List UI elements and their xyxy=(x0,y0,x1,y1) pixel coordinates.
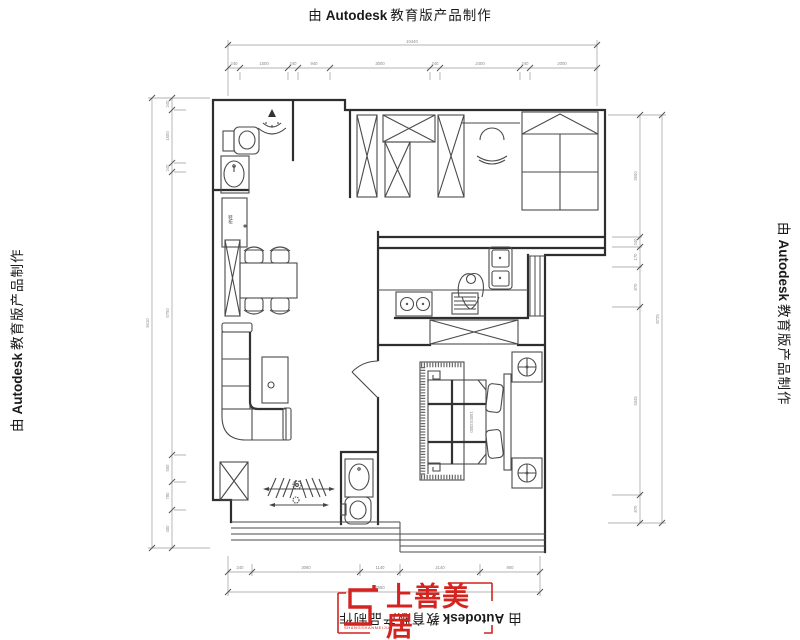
floorplan-canvas: 由Autodesk教育版产品制作 由Autodesk教育版产品制作 由Autod… xyxy=(0,0,800,640)
living-column xyxy=(220,462,248,500)
walls xyxy=(213,100,605,552)
entry-plant-decor xyxy=(263,478,335,507)
dim-label: 240 xyxy=(165,100,170,108)
dim-label: 170 xyxy=(633,253,638,261)
shower-head-icon xyxy=(258,109,286,134)
person-figure xyxy=(458,274,483,309)
window-kitchen-right xyxy=(528,256,545,316)
bathroom-toilet xyxy=(223,127,259,154)
dim-label: 240 xyxy=(290,61,298,66)
dim-label: 780 xyxy=(165,492,170,500)
dim-label: 1500 xyxy=(165,131,170,141)
dim-label: 8725 xyxy=(655,314,660,324)
dim-label: 240 xyxy=(231,61,239,66)
desk-chair xyxy=(462,123,520,164)
dim-label: 240 xyxy=(633,238,638,246)
dim-label: 870 xyxy=(633,283,638,291)
dim-label: 3060 xyxy=(301,565,311,570)
stove xyxy=(396,292,432,316)
dim-label: 9410 xyxy=(145,318,150,328)
dim-label: 240 xyxy=(165,164,170,172)
bathroom-sink xyxy=(221,156,249,193)
company-logo: 上善美居 SHANGSHANMEIJU xyxy=(336,581,496,639)
bedroom-door xyxy=(352,361,378,398)
logo-subtext: SHANGSHANMEIJU xyxy=(344,625,390,630)
nightstand xyxy=(512,458,542,488)
dim-label: 240 xyxy=(432,61,440,66)
dim-label: 940 xyxy=(311,61,319,66)
dim-label: 900 xyxy=(507,565,515,570)
dim-label: 500 xyxy=(165,464,170,472)
dim-label: 240 xyxy=(522,61,530,66)
sofa xyxy=(222,323,291,440)
wardrobe xyxy=(383,115,435,142)
dim-label: 240 xyxy=(237,565,245,570)
bed-top xyxy=(522,112,598,210)
dim-label: 2140 xyxy=(435,565,445,570)
dining-chair xyxy=(270,247,290,263)
dim-label: 2000 xyxy=(557,61,567,66)
shoe-cabinet-label: 鞋柜 xyxy=(228,214,234,226)
dimension-right: 2600 240 170 870 3345 870 8725 xyxy=(608,112,666,526)
dimension-left: 240 1500 240 5750 500 780 400 9410 xyxy=(145,95,210,551)
kitchen-sink xyxy=(489,247,512,289)
bed-size-label: 1500X2000 xyxy=(469,411,474,433)
bedroom-wardrobe xyxy=(430,320,518,344)
dimension-top: 10440 240 1500 240 940 3000 240 2400 240… xyxy=(225,39,600,106)
logo-name: 上善美居 xyxy=(386,583,496,640)
coffee-table xyxy=(262,357,288,403)
dim-label: 870 xyxy=(633,505,638,513)
wardrobe xyxy=(357,115,377,197)
dim-label: 2600 xyxy=(633,171,638,181)
dim-label: 3000 xyxy=(375,61,385,66)
floorplan-drawing: 10440 240 1500 240 940 3000 240 2400 240… xyxy=(0,0,800,640)
dim-label: 1500 xyxy=(259,61,269,66)
dim-label: 400 xyxy=(165,525,170,533)
dim-label: 3345 xyxy=(633,396,638,406)
dim-label: 1140 xyxy=(375,565,385,570)
dining-chair xyxy=(270,298,290,314)
dining-chair xyxy=(244,298,264,314)
dim-label: 5750 xyxy=(165,308,170,318)
dining-column xyxy=(225,240,240,316)
dim-label: 10440 xyxy=(406,39,418,44)
dining-table xyxy=(240,263,297,298)
wardrobe xyxy=(438,115,464,197)
dining-chair xyxy=(244,247,264,263)
bed-master: 1500X2000 xyxy=(428,374,511,470)
bathroom2-sink xyxy=(345,459,373,497)
window-band-bottom xyxy=(231,522,545,552)
nightstand xyxy=(512,352,542,382)
logo-s5-icon xyxy=(344,585,378,624)
wardrobe xyxy=(385,142,410,197)
bathroom2-toilet xyxy=(341,497,371,524)
dim-label: 2400 xyxy=(475,61,485,66)
